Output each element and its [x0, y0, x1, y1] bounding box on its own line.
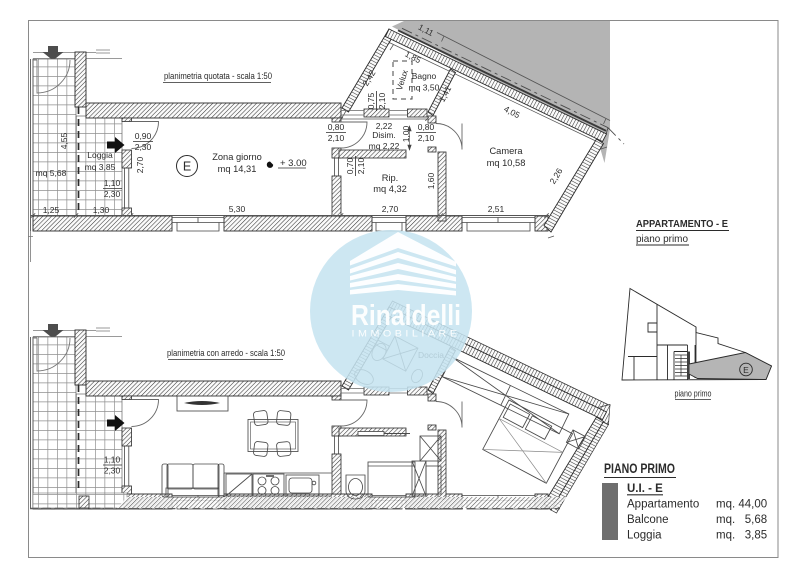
svg-text:mq. 44,00: mq. 44,00 — [716, 499, 767, 511]
svg-text:Camera: Camera — [489, 146, 523, 156]
svg-text:mq 3,50: mq 3,50 — [409, 83, 440, 93]
svg-text:mq. 5,68: mq. 5,68 — [716, 514, 767, 526]
svg-text:2,70: 2,70 — [135, 156, 145, 173]
svg-text:piano primo: piano primo — [675, 389, 712, 399]
svg-text:1,60: 1,60 — [426, 172, 436, 189]
svg-text:4,55: 4,55 — [59, 132, 69, 149]
svg-text:Bagno: Bagno — [412, 71, 437, 81]
svg-text:2,10: 2,10 — [356, 157, 366, 174]
svg-text:Rinaldelli: Rinaldelli — [351, 300, 461, 332]
svg-text:IMMOBILIARE: IMMOBILIARE — [352, 329, 461, 339]
svg-text:mq 4,32: mq 4,32 — [373, 184, 407, 194]
svg-text:5,30: 5,30 — [229, 204, 246, 214]
svg-text:2,10: 2,10 — [328, 133, 345, 143]
svg-text:mq 2,22: mq 2,22 — [369, 141, 400, 151]
svg-text:mq 10,58: mq 10,58 — [487, 158, 526, 168]
svg-text:planimetria con arredo - scala: planimetria con arredo - scala 1:50 — [167, 348, 285, 358]
svg-text:APPARTAMENTO - E: APPARTAMENTO - E — [636, 218, 728, 230]
svg-text:1,30: 1,30 — [93, 205, 110, 215]
svg-text:2,70: 2,70 — [382, 204, 399, 214]
svg-text:+ 3.00: + 3.00 — [280, 158, 307, 169]
svg-text:Balcone: Balcone — [627, 514, 669, 526]
svg-text:2,30: 2,30 — [135, 142, 152, 152]
svg-text:2,10: 2,10 — [418, 133, 435, 143]
svg-text:1,00: 1,00 — [401, 125, 411, 142]
svg-text:planimetria quotata - scala 1:: planimetria quotata - scala 1:50 — [164, 71, 272, 81]
svg-text:PIANO PRIMO: PIANO PRIMO — [604, 461, 675, 476]
svg-text:mq. 3,85: mq. 3,85 — [716, 530, 767, 542]
svg-text:1,10: 1,10 — [104, 178, 121, 188]
svg-text:2,10: 2,10 — [377, 92, 387, 109]
svg-text:0,90: 0,90 — [135, 131, 152, 141]
svg-text:2,51: 2,51 — [488, 204, 505, 214]
svg-text:mq 5,68: mq 5,68 — [36, 168, 67, 178]
svg-text:Disim.: Disim. — [372, 130, 396, 140]
svg-text:0,80: 0,80 — [418, 122, 435, 132]
svg-text:1,10: 1,10 — [104, 455, 121, 465]
svg-text:0,80: 0,80 — [328, 122, 345, 132]
svg-text:Loggia: Loggia — [87, 150, 113, 160]
svg-text:U.I. - E: U.I. - E — [627, 483, 663, 495]
svg-text:2,30: 2,30 — [104, 189, 121, 199]
svg-text:piano primo: piano primo — [636, 233, 688, 245]
svg-text:mq 3,85: mq 3,85 — [85, 162, 116, 172]
svg-text:0,75: 0,75 — [366, 92, 376, 109]
svg-text:2,30: 2,30 — [104, 466, 121, 476]
svg-text:E: E — [183, 160, 191, 174]
svg-text:1,25: 1,25 — [43, 205, 60, 215]
svg-text:Loggia: Loggia — [627, 530, 662, 542]
svg-text:E: E — [743, 365, 749, 375]
svg-text:0,70: 0,70 — [345, 157, 355, 174]
svg-text:Rip.: Rip. — [382, 173, 399, 183]
svg-text:mq 14,31: mq 14,31 — [218, 164, 257, 174]
svg-text:Appartamento: Appartamento — [627, 499, 699, 511]
svg-text:Zona giorno: Zona giorno — [212, 152, 262, 162]
